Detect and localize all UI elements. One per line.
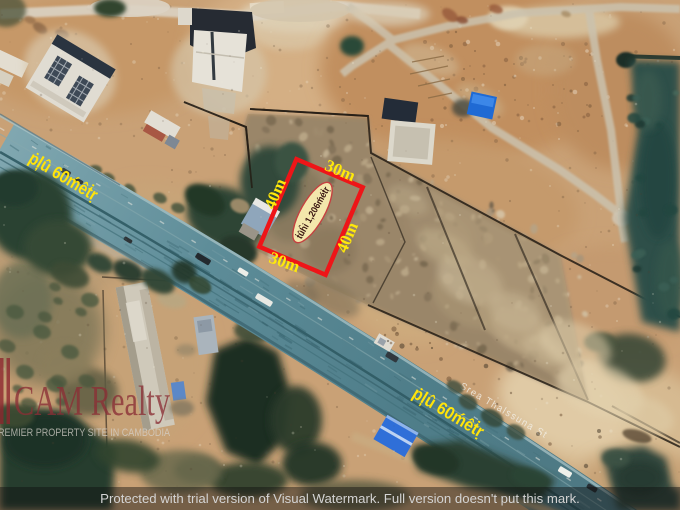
svg-text:Protected with trial version o: Protected with trial version of Visual W… bbox=[100, 491, 580, 506]
svg-text:PREMIER PROPERTY SITE IN CAMBO: PREMIER PROPERTY SITE IN CAMBODIA bbox=[0, 427, 171, 439]
svg-text:CAM Realty: CAM Realty bbox=[14, 379, 170, 425]
